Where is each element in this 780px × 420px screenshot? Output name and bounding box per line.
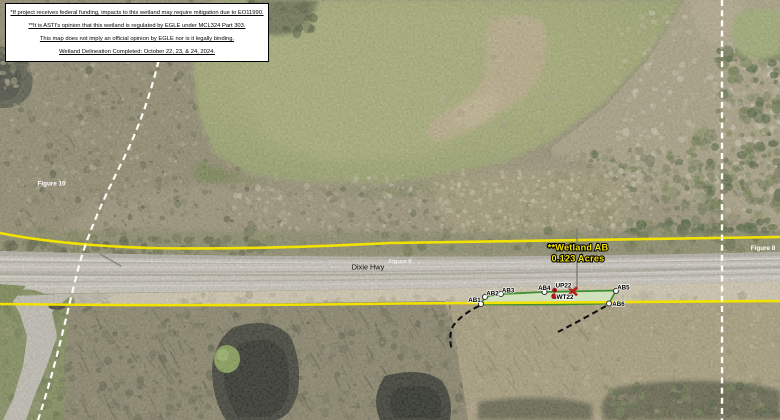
svg-text:**Wetland AB: **Wetland AB [548,243,609,253]
svg-text:AB4: AB4 [538,285,551,292]
svg-text:AB2: AB2 [486,291,499,298]
svg-text:0.123 Acres: 0.123 Acres [552,254,605,264]
svg-text:UP22: UP22 [556,283,572,290]
svg-text:AB6: AB6 [612,301,625,308]
svg-text:Figure 10: Figure 10 [38,181,66,188]
svg-text:Figure 9: Figure 9 [389,259,413,265]
svg-text:WT22: WT22 [556,294,573,301]
svg-text:Figure 8: Figure 8 [751,245,776,252]
svg-text:Dixie Hwy: Dixie Hwy [352,263,385,272]
svg-text:AB1: AB1 [468,297,481,304]
svg-text:AB5: AB5 [617,285,630,292]
svg-text:AB3: AB3 [502,287,515,294]
